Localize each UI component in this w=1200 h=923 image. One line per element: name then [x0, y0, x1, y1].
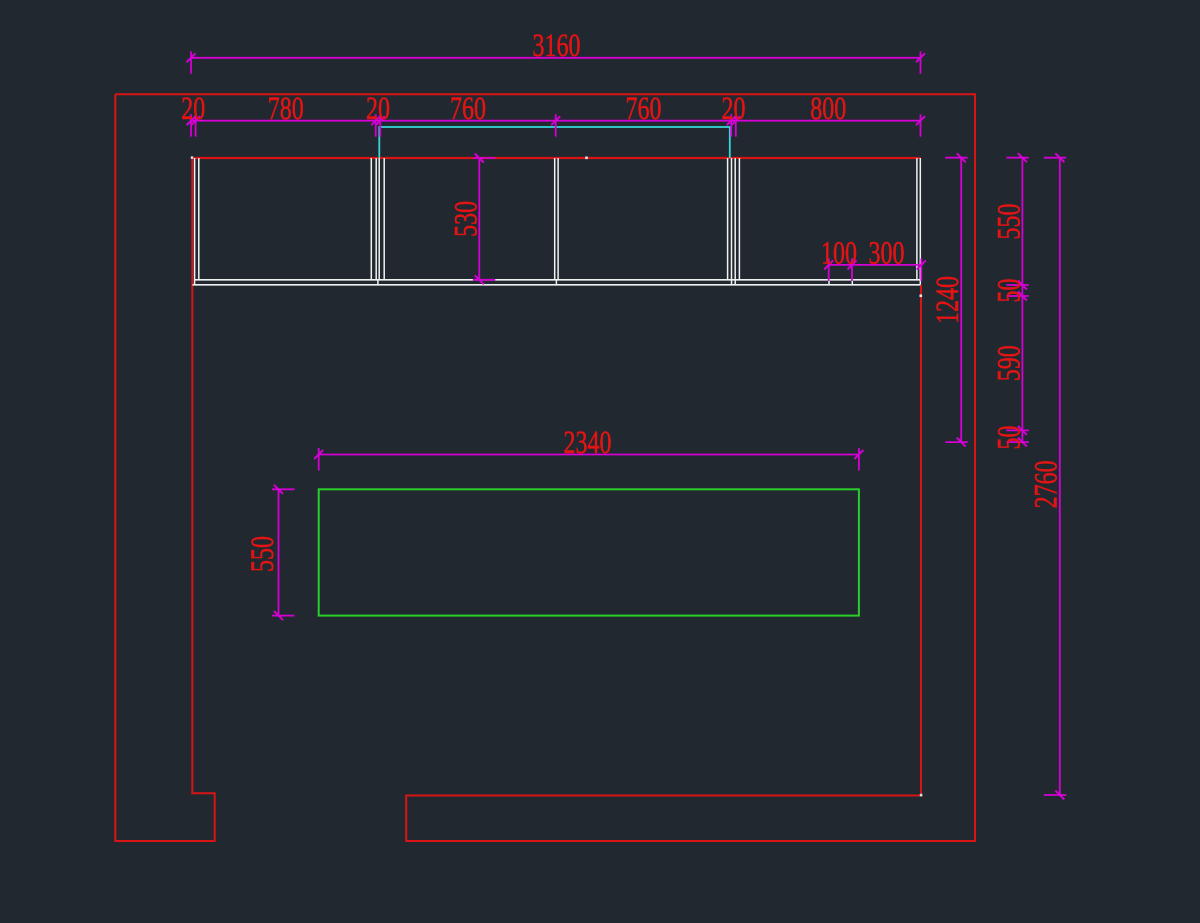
svg-text:50: 50 — [991, 426, 1027, 450]
svg-text:2340: 2340 — [564, 425, 612, 461]
svg-text:3160: 3160 — [533, 28, 581, 64]
svg-text:300: 300 — [869, 235, 905, 271]
svg-text:550: 550 — [991, 204, 1027, 240]
svg-text:20: 20 — [366, 91, 390, 127]
svg-text:780: 780 — [268, 91, 304, 127]
svg-text:50: 50 — [991, 279, 1027, 303]
svg-text:760: 760 — [626, 91, 662, 127]
svg-text:1240: 1240 — [930, 276, 966, 324]
svg-text:2760: 2760 — [1029, 460, 1065, 508]
svg-text:530: 530 — [448, 201, 484, 237]
svg-text:760: 760 — [450, 91, 486, 127]
svg-text:20: 20 — [722, 91, 746, 127]
svg-text:100: 100 — [821, 235, 857, 271]
svg-text:800: 800 — [810, 91, 846, 127]
svg-text:550: 550 — [245, 536, 281, 572]
svg-text:590: 590 — [991, 345, 1027, 381]
svg-text:20: 20 — [181, 91, 205, 127]
